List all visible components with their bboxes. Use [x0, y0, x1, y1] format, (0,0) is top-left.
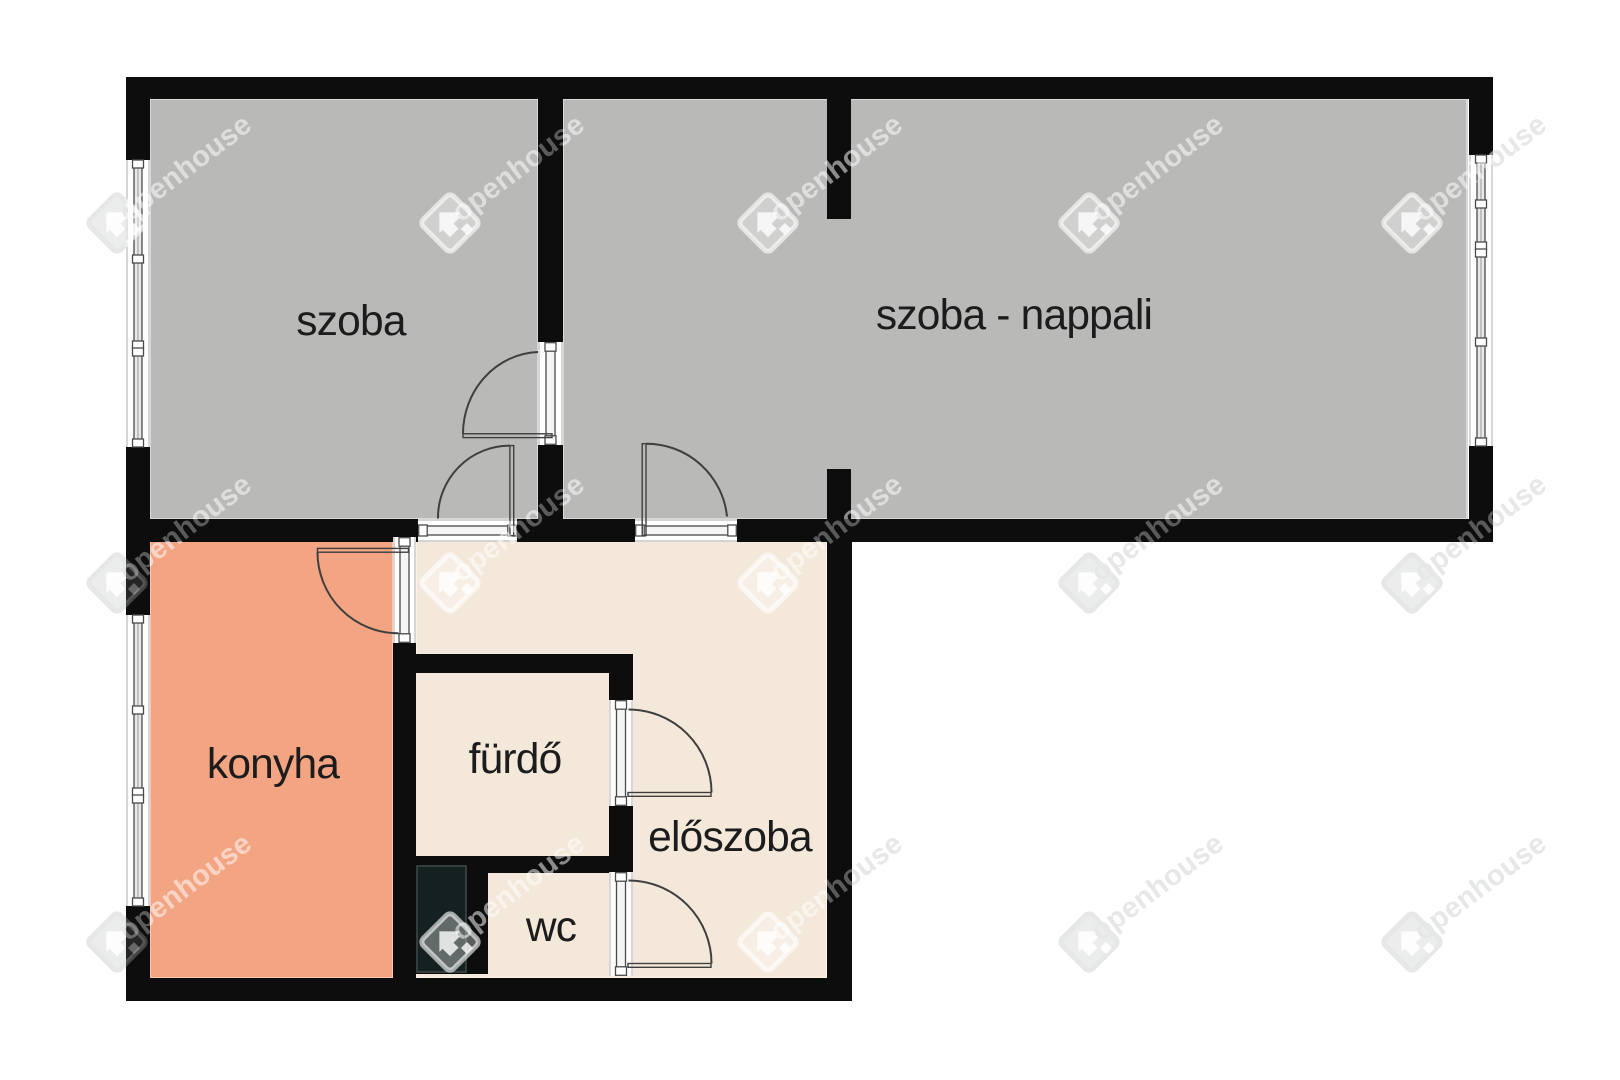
svg-text:konyha: konyha: [207, 741, 340, 788]
svg-text:szoba: szoba: [296, 298, 407, 345]
svg-text:szoba - nappali: szoba - nappali: [876, 292, 1152, 339]
svg-text:előszoba: előszoba: [648, 814, 813, 861]
svg-text:fürdő: fürdő: [469, 736, 562, 783]
svg-text:wc: wc: [525, 904, 577, 951]
